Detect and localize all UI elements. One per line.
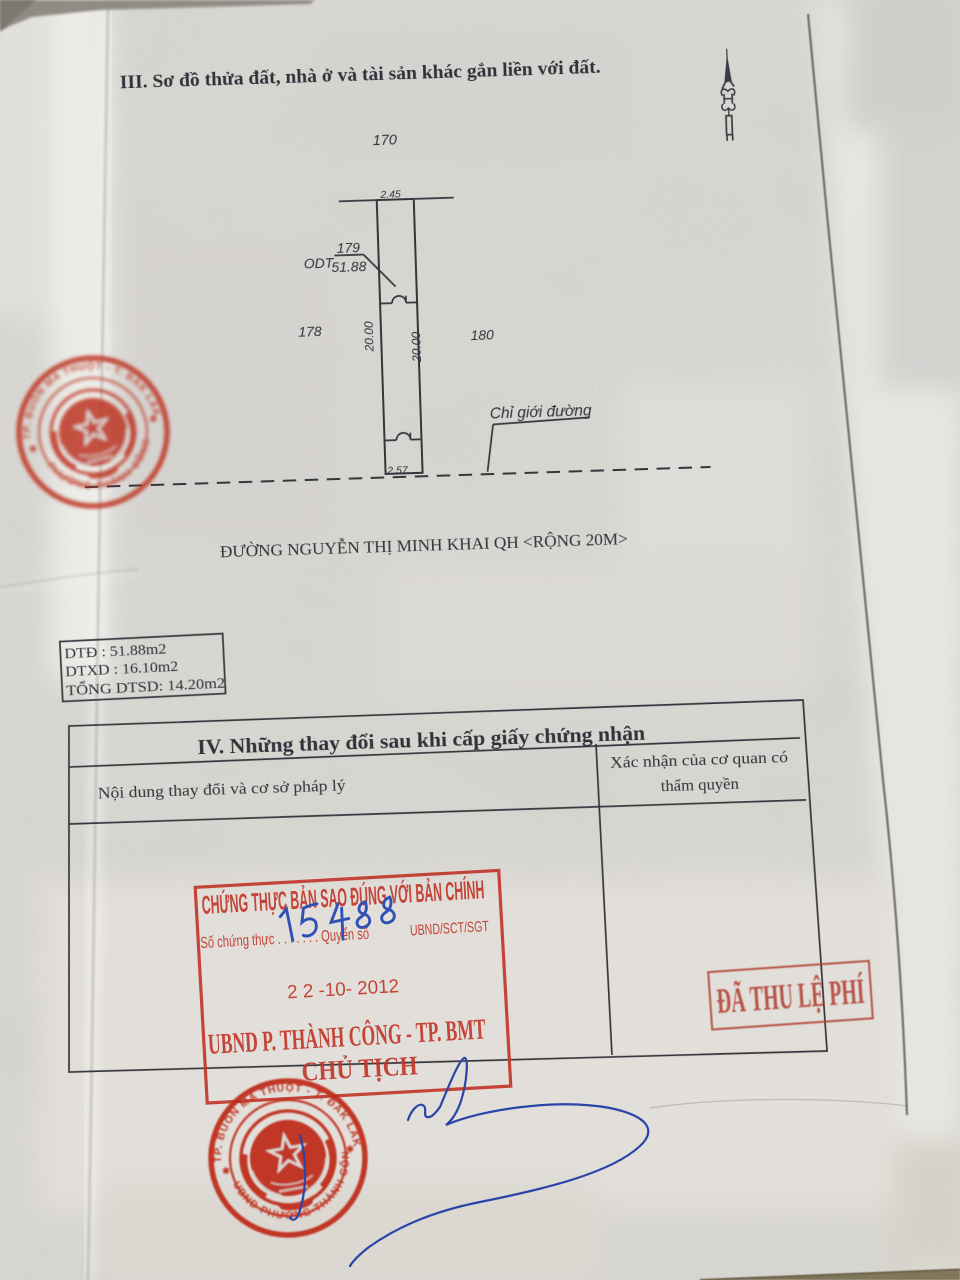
svg-text:178: 178 [298,323,322,340]
svg-text:thẩm quyền: thẩm quyền [661,776,740,796]
svg-text:170: 170 [372,132,397,149]
svg-text:20.00: 20.00 [362,321,377,353]
svg-text:51.88: 51.88 [331,258,367,275]
svg-text:20.00: 20.00 [409,331,424,363]
svg-text:2.45: 2.45 [379,188,401,201]
svg-text:179: 179 [336,239,360,256]
svg-text:180: 180 [470,326,494,343]
svg-text:2.57: 2.57 [386,464,409,477]
svg-text:Chỉ giới đường: Chỉ giới đường [490,402,593,422]
